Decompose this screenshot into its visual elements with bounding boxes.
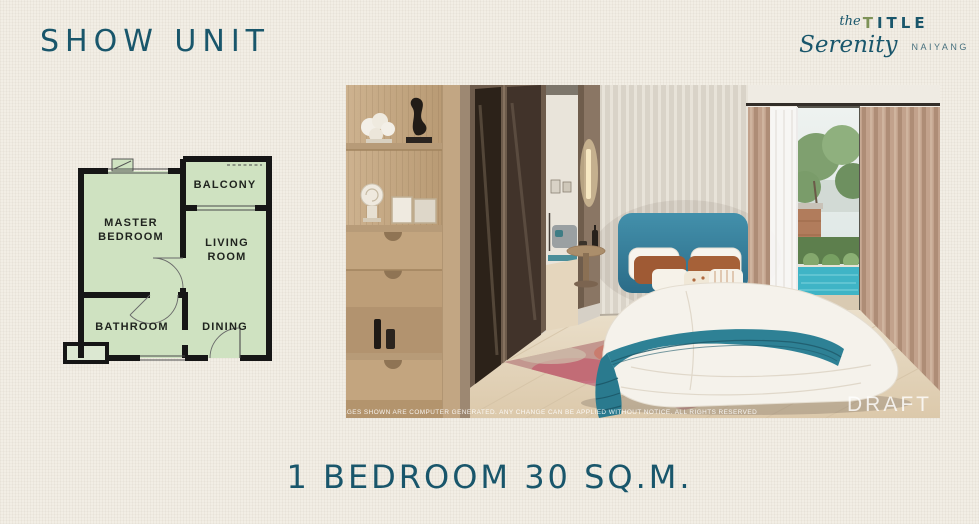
photo-disclaimer: *THE IMAGES SHOWN ARE COMPUTER GENERATED… — [346, 409, 757, 416]
wall-art-frame — [563, 182, 571, 192]
pillar-cap — [795, 203, 823, 209]
unit-caption: 1 BEDROOM 30 SQ.M. — [0, 458, 979, 496]
room-label-master-1: MASTER — [104, 217, 158, 229]
floor-plan: MASTER BEDROOM BALCONY LIVING ROOM BATHR… — [57, 146, 297, 376]
brand-project-name: Serenity — [799, 34, 897, 57]
window-view — [789, 107, 871, 310]
room-label-master-2: BEDROOM — [98, 231, 164, 243]
shelf-unit — [346, 85, 470, 418]
bedroom-photo-svg: *THE IMAGES SHOWN ARE COMPUTER GENERATED… — [346, 85, 940, 418]
brand-the-script: the — [839, 14, 860, 29]
brand-line-title: theTITLE — [801, 16, 967, 32]
black-bottle — [386, 329, 395, 349]
picture-frame — [392, 197, 412, 223]
page-title: SHOW UNIT — [40, 24, 270, 59]
wall-sconce-light — [586, 149, 591, 199]
black-bottle — [374, 319, 381, 349]
pool — [797, 267, 860, 295]
draft-watermark: DRAFT — [847, 393, 932, 416]
room-label-living-1: LIVING — [205, 237, 249, 249]
room-label-bathroom: BATHROOM — [95, 321, 169, 333]
shelf-board — [346, 143, 442, 150]
floor-plan-svg: MASTER BEDROOM BALCONY LIVING ROOM BATHR… — [57, 146, 297, 376]
brand-title-rest: ITLE — [877, 14, 929, 32]
curtain-rod — [746, 103, 940, 106]
brand-line-name: Serenity NAIYANG — [801, 34, 967, 57]
picture-frame — [414, 199, 436, 223]
brand-title-first-letter: T — [863, 14, 877, 32]
floor-plan-ledge — [65, 344, 107, 362]
room-label-balcony: BALCONY — [194, 179, 257, 191]
brand-logo: theTITLE Serenity NAIYANG — [801, 16, 967, 57]
brand-location: NAIYANG — [912, 43, 969, 52]
hallway — [546, 85, 578, 335]
room-label-dining: DINING — [202, 321, 248, 333]
wall-art-frame — [551, 180, 560, 193]
bedroom-render-photo: *THE IMAGES SHOWN ARE COMPUTER GENERATED… — [346, 85, 940, 418]
drawers — [346, 232, 442, 307]
shelf-board — [346, 225, 442, 232]
room-label-living-2: ROOM — [207, 251, 246, 263]
